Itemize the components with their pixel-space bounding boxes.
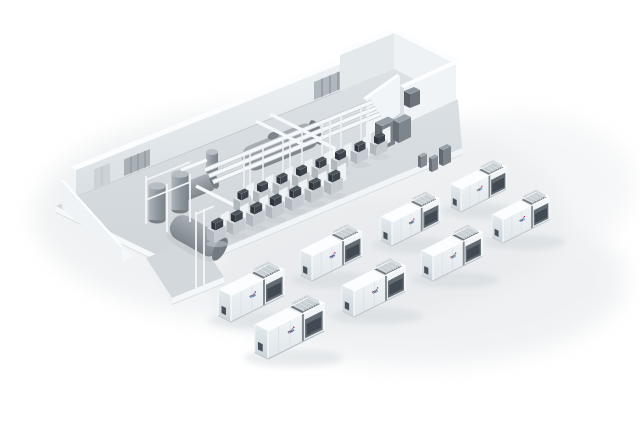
cabinet-side	[439, 148, 443, 166]
tank-body	[172, 174, 189, 210]
cabinet-small-1	[418, 153, 427, 169]
cabinet-side	[393, 120, 399, 143]
facility-render-stage: nel	[0, 0, 640, 427]
cabinet-side	[429, 158, 432, 173]
tank-top	[172, 170, 189, 178]
cabinet-small-2	[429, 155, 438, 173]
tank-top	[149, 182, 166, 190]
vertical-tank-2	[172, 170, 189, 213]
cabinet-side	[418, 156, 421, 169]
tank-body	[149, 186, 166, 220]
annex-cabinet	[404, 87, 420, 108]
facility-isometric-illustration: nel	[0, 0, 640, 427]
cabinet-small-3	[439, 144, 451, 166]
vertical-tank-1	[149, 182, 166, 223]
tank-top	[206, 149, 218, 155]
